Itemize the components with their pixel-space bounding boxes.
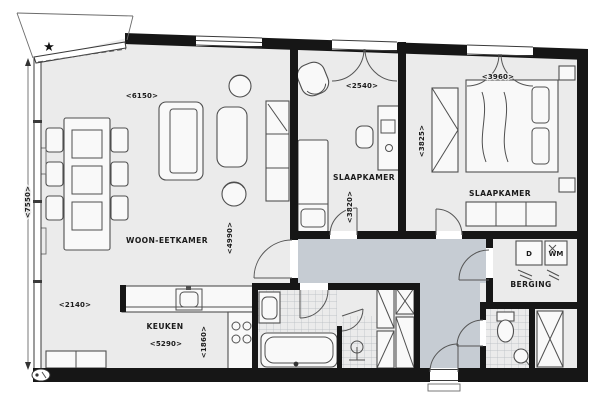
double-bed bbox=[466, 80, 558, 172]
coffee-table bbox=[217, 107, 247, 167]
dim-kitchen-bottom: <5290> bbox=[150, 340, 182, 348]
dresser bbox=[466, 202, 556, 226]
room-label-storage: BERGING bbox=[510, 280, 551, 289]
living-window bbox=[196, 35, 262, 47]
desk-chair bbox=[356, 126, 373, 148]
scale-marker bbox=[32, 369, 50, 381]
single-bed bbox=[298, 140, 328, 232]
floor-plan-page: ★ WOON-EETKAMER <6150> <7550> <2140> <49… bbox=[0, 0, 600, 400]
duct-shaft-small bbox=[396, 288, 414, 314]
toilet bbox=[497, 312, 514, 342]
dim-living-top: <6150> bbox=[126, 92, 158, 100]
wardrobe bbox=[432, 88, 458, 172]
dim-living-mid: <4990> bbox=[226, 222, 234, 254]
tv-cabinet bbox=[266, 101, 289, 201]
washbasin bbox=[259, 292, 280, 323]
dim-bedroom1-top: <2540> bbox=[346, 82, 378, 90]
room-label-bedroom1: SLAAPKAMER bbox=[333, 173, 395, 182]
dim-living-bottom: <2140> bbox=[59, 301, 91, 309]
washer-label: WM bbox=[549, 250, 564, 258]
sofa bbox=[159, 102, 203, 180]
armchair-bottom bbox=[222, 182, 246, 206]
nightstand-bottom bbox=[559, 178, 575, 192]
bathtub bbox=[261, 333, 337, 367]
star-icon: ★ bbox=[43, 40, 55, 55]
duct-shaft-large bbox=[537, 311, 563, 367]
room-label-living: WOON-EETKAMER bbox=[126, 236, 208, 245]
desk bbox=[378, 106, 400, 170]
nightstand-top bbox=[559, 66, 575, 80]
dim-living-left: <7550> bbox=[24, 186, 32, 218]
floor-plan: ★ WOON-EETKAMER <6150> <7550> <2140> <49… bbox=[0, 0, 600, 400]
dim-bedroom1-side: <3820> bbox=[346, 191, 354, 223]
sideboard bbox=[46, 351, 106, 368]
dim-kitchen-side: <1860> bbox=[200, 326, 208, 358]
dim-bedroom2-top: <3960> bbox=[482, 73, 514, 81]
armchair-top bbox=[229, 75, 251, 97]
room-label-bedroom2: SLAAPKAMER bbox=[469, 189, 531, 198]
room-label-kitchen: KEUKEN bbox=[146, 322, 183, 331]
dryer-label: D bbox=[526, 250, 532, 258]
dim-bedroom2-side: <3825> bbox=[418, 125, 426, 157]
